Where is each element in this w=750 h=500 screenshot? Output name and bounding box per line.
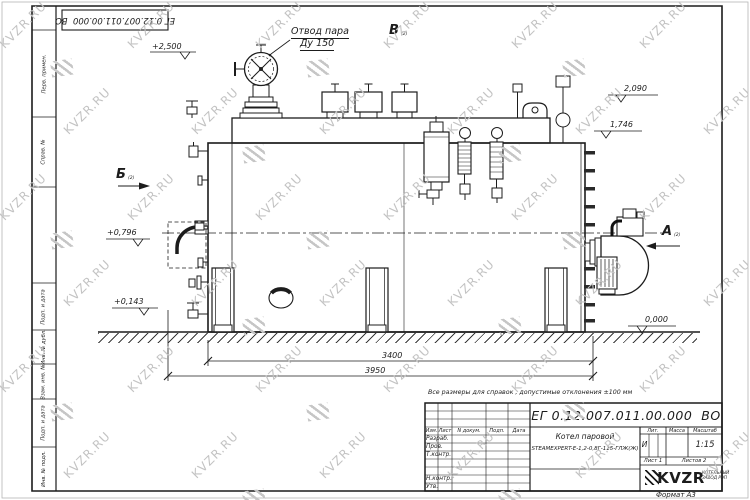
left-fittings <box>186 101 208 318</box>
scale-label: Масштаб <box>688 427 722 434</box>
top-left-stamp: ЕГ 0.12.007.011.00.000 ВО <box>62 10 168 30</box>
elevation-0143: +0,143 <box>114 297 144 306</box>
tb-col-dokum: N докум. <box>452 427 486 435</box>
level-column <box>419 116 449 205</box>
view-label-b: Б <box>116 167 126 182</box>
format-label: Формат А3 <box>656 491 696 499</box>
kvzr-logo-text: KVZR <box>660 467 702 488</box>
side-label-podp-data-1: Подп. и дата <box>32 283 56 330</box>
burner <box>585 209 649 295</box>
mass-label: Масса <box>666 427 688 434</box>
view-label-v: В <box>389 23 399 38</box>
elevation-2090: 2,090 <box>624 84 647 93</box>
tb-col-list: Лист <box>438 427 452 435</box>
steam-valve <box>235 45 282 118</box>
elevation-marks <box>106 52 676 333</box>
view-ref-b: (2) <box>128 176 134 181</box>
tb-row-tkontr: Т.контр. <box>426 451 460 459</box>
tb-row-prov: Пров. <box>426 443 460 451</box>
view-ref-v: (2) <box>401 32 407 37</box>
top-fittings <box>322 84 522 118</box>
tb-row-nkontr: Н.контр. <box>426 475 460 483</box>
kvzr-tagline: КОТЕЛЬНЫЙ ЗАВОД РЭП <box>702 471 729 481</box>
dimension-3950: 3950 <box>365 366 385 375</box>
lifting-lug <box>523 103 547 118</box>
tb-col-podp: Подп. <box>486 427 508 435</box>
sheet-number: Лист 1 <box>640 457 666 465</box>
drawing-sheet: KVZR.RUKVZR.RUKVZR.RUKVZR.RUKVZR.RUKVZR.… <box>0 0 750 500</box>
elevation-0000: 0,000 <box>645 315 668 324</box>
callout-line2: Ду 150 <box>300 38 334 51</box>
boiler-drawing <box>98 45 700 332</box>
dimension-3400: 3400 <box>382 351 402 360</box>
manhole <box>269 288 293 308</box>
kvzr-tagline-line2: ЗАВОД РЭП <box>702 476 729 481</box>
gauge-siphon <box>556 76 570 143</box>
scale-value: 1:15 <box>688 437 722 453</box>
elevation-0796: +0,796 <box>107 228 137 237</box>
sheets-total: Листов 2 <box>666 457 722 465</box>
elevation-2500: +2,500 <box>152 42 182 51</box>
gauge-glass-1 <box>458 128 471 201</box>
view-label-a: А <box>662 224 672 239</box>
side-label-vzam-inv: Взам. инв. № <box>32 364 56 399</box>
elevation-1746: 1,746 <box>610 120 633 129</box>
tb-col-izm: Изм. <box>425 427 438 435</box>
product-name-line1: Котел паровой <box>530 430 640 443</box>
side-label-sprav: Справ. № <box>32 117 56 187</box>
tolerance-note: Все размеры для справок , допустимые отк… <box>428 389 632 396</box>
view-ref-a: (2) <box>674 233 680 238</box>
tb-row-razrab: Разраб. <box>426 435 460 443</box>
side-label-perv-primen: Перв. примен. <box>32 30 56 117</box>
support-legs <box>212 268 567 332</box>
doc-number: ЕГ 0.12.007.011.00.000 ВО <box>531 404 721 426</box>
side-label-inv-podl: Инв. № подл. <box>32 447 56 491</box>
callout-leader <box>269 40 290 56</box>
gauge-glass-2 <box>490 128 503 204</box>
tb-row-utv: Утв. <box>426 483 460 491</box>
product-name-line2: STEAMEXPERT-Е-1,2-0,8Г-115-ГЛЖ(Ж) <box>530 444 640 454</box>
lit-label: Лит. <box>640 427 666 434</box>
tb-col-data: Дата <box>508 427 530 435</box>
side-label-inv-dubl: Инв. № дубл. <box>32 330 56 364</box>
side-label-podp-data-2: Подп. и дата <box>32 399 56 447</box>
lit-value: И <box>640 436 649 452</box>
